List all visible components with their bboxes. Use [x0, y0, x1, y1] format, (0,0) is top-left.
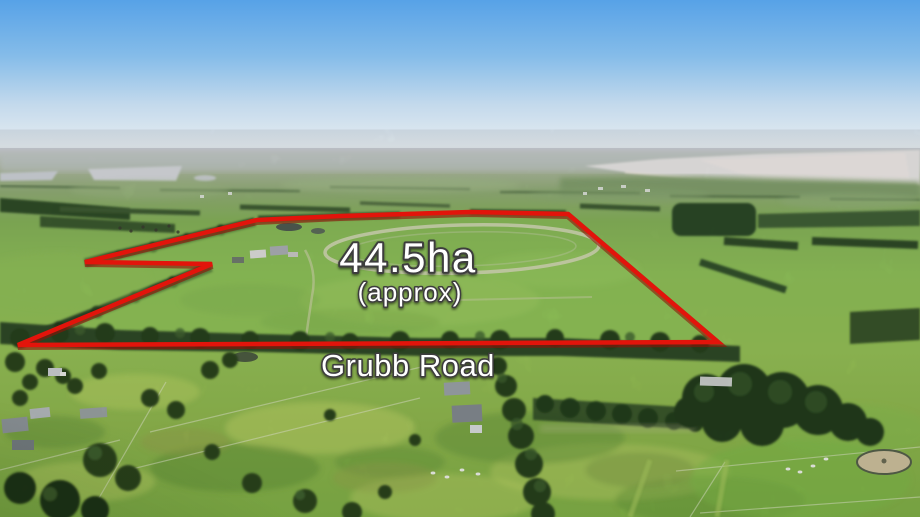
aerial-photo-canvas: 44.5ha (approx) Grubb Road	[0, 0, 920, 517]
road-label: Grubb Road	[321, 348, 495, 383]
aerial-photo: 44.5ha (approx) Grubb Road	[0, 0, 920, 517]
area-approx-label: (approx)	[358, 277, 463, 307]
sky	[0, 0, 920, 162]
area-label: 44.5ha	[339, 234, 476, 281]
